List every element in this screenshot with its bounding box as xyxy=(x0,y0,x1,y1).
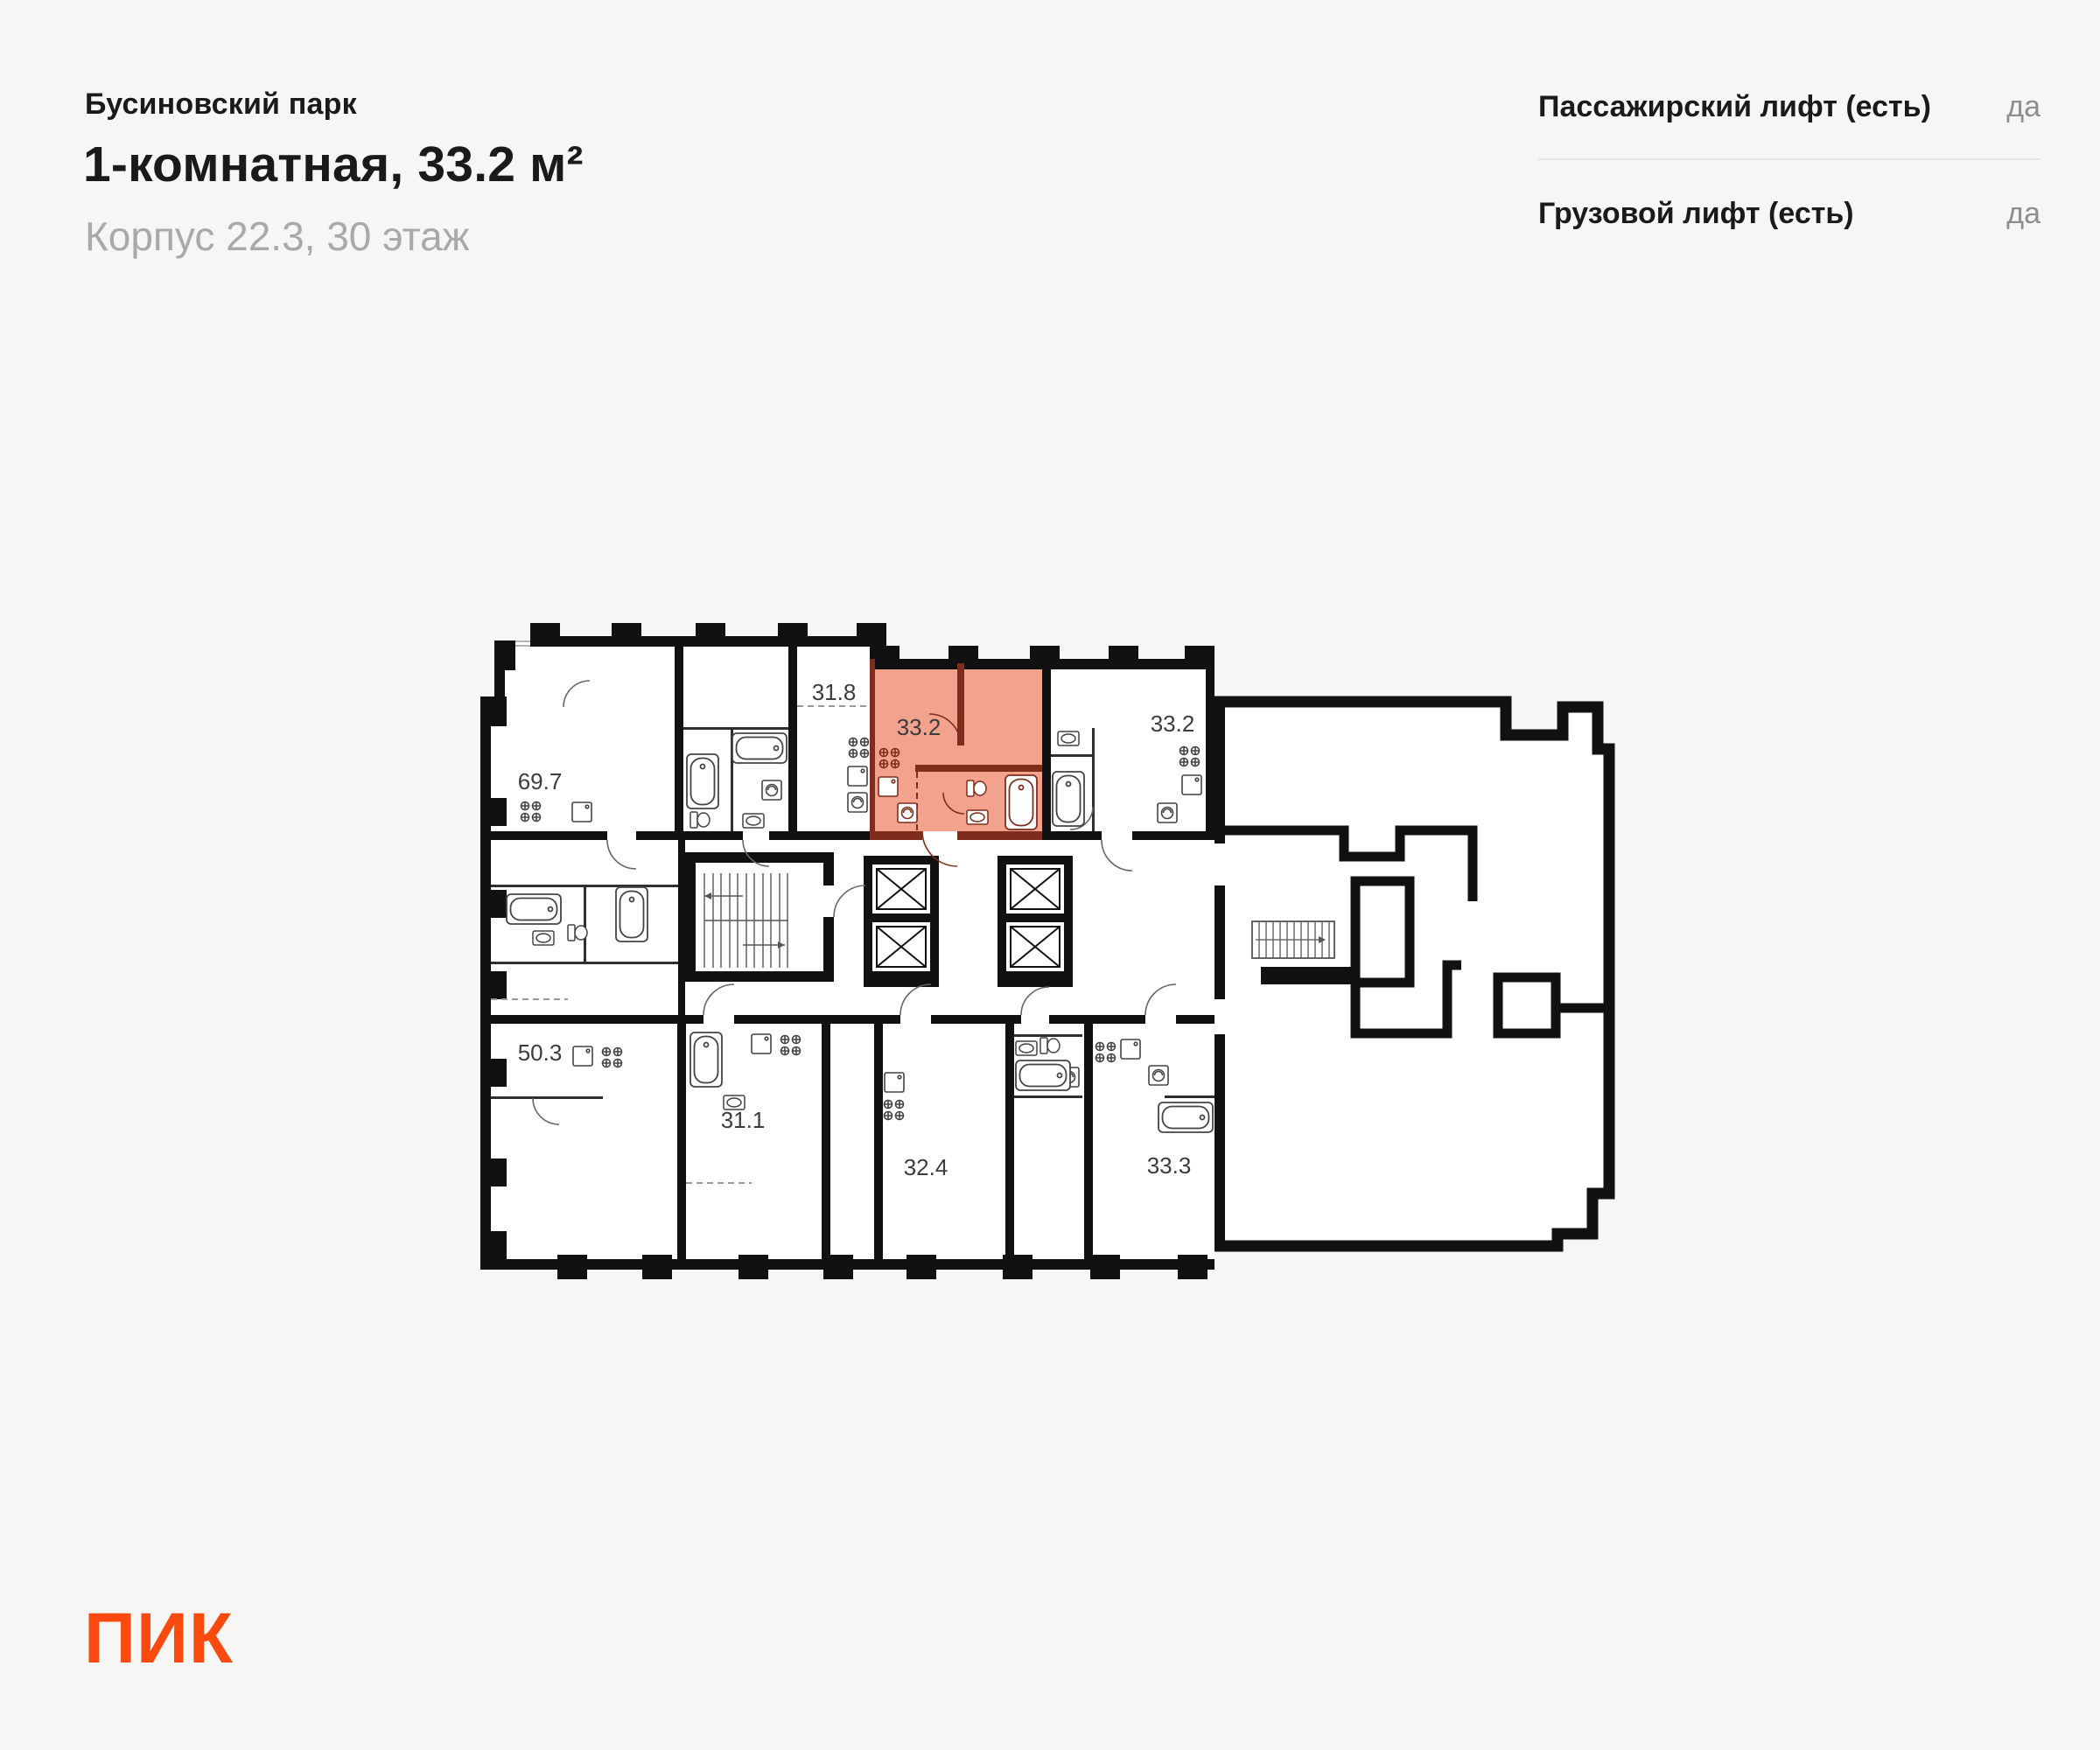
washer-icon xyxy=(898,803,917,822)
toilet-icon xyxy=(690,812,710,828)
floor-plan: 69.7 31.8 33.2 33.2 50.3 31.1 32.4 33.3 xyxy=(480,623,1618,1279)
area-label: 31.8 xyxy=(812,679,857,705)
sink-icon xyxy=(967,810,988,824)
elevator-bank-left xyxy=(864,856,939,987)
area-label-highlighted: 33.2 xyxy=(897,714,941,740)
toilet-icon xyxy=(1040,1038,1060,1053)
staircase xyxy=(685,852,834,982)
washer-icon xyxy=(1158,803,1177,822)
area-label: 69.7 xyxy=(518,768,563,794)
bathtub-icon xyxy=(1005,775,1037,829)
feature-value: да xyxy=(2006,197,2040,231)
feature-label: Грузовой лифт (есть) xyxy=(1538,197,1854,231)
kitchen-sink-icon xyxy=(1182,775,1201,794)
area-label: 33.3 xyxy=(1147,1152,1192,1179)
bathtub-icon xyxy=(690,1032,722,1087)
washer-icon xyxy=(762,780,781,800)
sink-icon xyxy=(533,931,554,945)
bathtub-icon xyxy=(1158,1102,1213,1132)
sink-icon xyxy=(1058,731,1079,745)
kitchen-sink-icon xyxy=(572,802,591,822)
kitchen-sink-icon xyxy=(1121,1039,1140,1059)
kitchen-sink-icon xyxy=(885,1073,904,1092)
area-label: 31.1 xyxy=(721,1107,766,1133)
page-subtitle: Корпус 22.3, 30 этаж xyxy=(85,213,470,260)
project-name: Бусиновский парк xyxy=(85,87,357,122)
kitchen-sink-icon xyxy=(878,777,898,796)
sink-icon xyxy=(743,814,764,828)
feature-value: да xyxy=(2006,90,2040,124)
area-label: 33.2 xyxy=(1151,710,1195,737)
bathtub-icon xyxy=(732,733,787,763)
adjacent-staircase xyxy=(1252,921,1334,958)
feature-label: Пассажирский лифт (есть) xyxy=(1538,90,1931,124)
kitchen-sink-icon xyxy=(752,1034,771,1053)
bathtub-icon xyxy=(507,894,561,924)
area-label: 50.3 xyxy=(518,1039,563,1066)
area-label: 32.4 xyxy=(904,1154,948,1180)
bathtub-icon xyxy=(687,754,718,808)
main-building-footprint xyxy=(480,640,1214,1270)
page-title: 1-комнатная, 33.2 м² xyxy=(83,136,584,193)
adjacent-section xyxy=(1214,702,1609,1246)
toilet-icon xyxy=(967,780,986,796)
washer-icon xyxy=(1149,1066,1168,1085)
elevator-bank-right xyxy=(997,856,1073,987)
divider xyxy=(1538,158,2040,160)
pik-logo[interactable]: ПИК xyxy=(84,1603,234,1675)
bathtub-icon xyxy=(616,887,647,941)
kitchen-sink-icon xyxy=(573,1046,592,1066)
feature-row-cargo-lift: Грузовой лифт (есть) да xyxy=(1538,197,2040,231)
bathtub-icon xyxy=(1053,772,1084,826)
kitchen-sink-icon xyxy=(848,766,867,786)
washer-icon xyxy=(848,793,867,812)
feature-row-passenger-lift: Пассажирский лифт (есть) да xyxy=(1538,90,2040,124)
bathtub-icon xyxy=(1016,1060,1070,1090)
sink-icon xyxy=(1016,1041,1037,1055)
toilet-icon xyxy=(568,925,587,941)
